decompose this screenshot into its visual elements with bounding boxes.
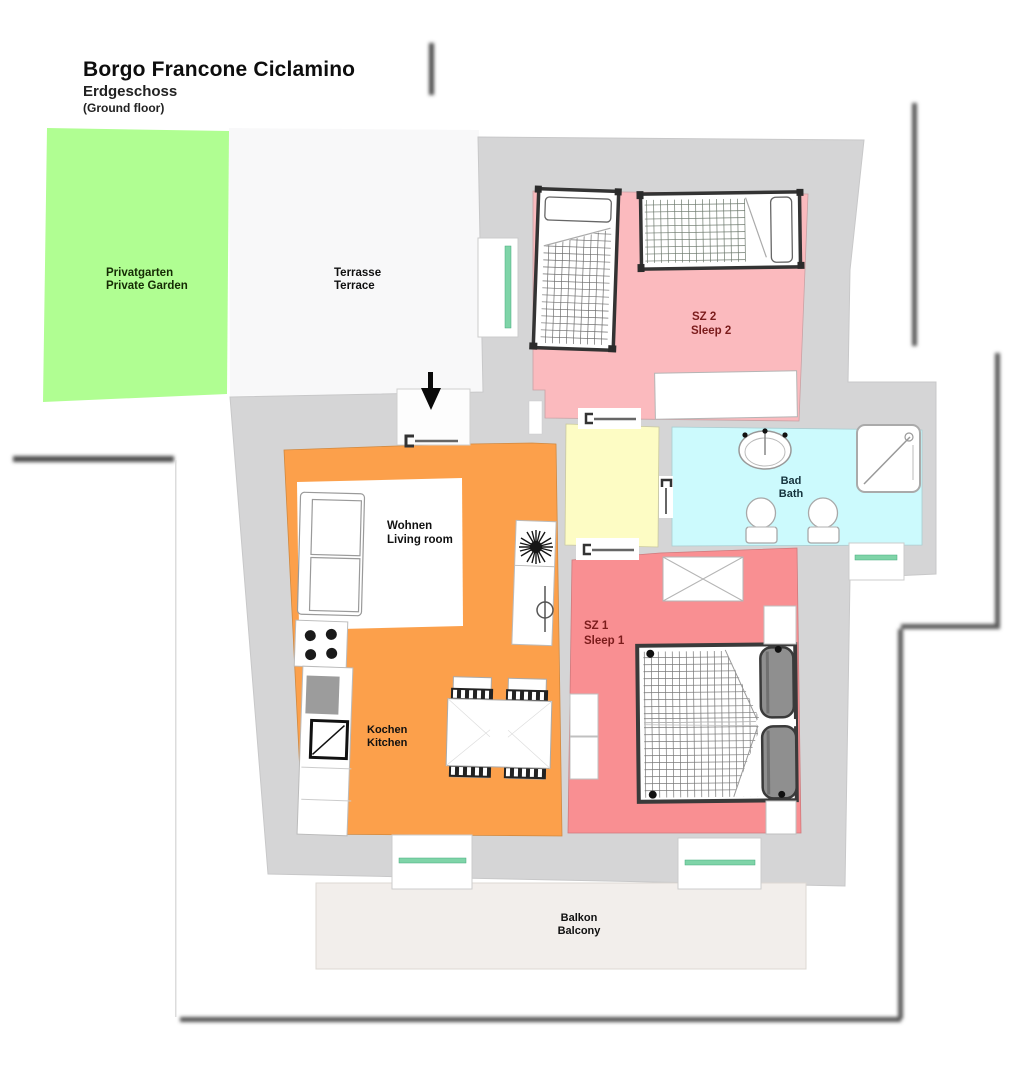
svg-text:Terrace: Terrace (334, 280, 375, 292)
svg-text:Erdgeschoss: Erdgeschoss (83, 83, 177, 100)
svg-text:Kochen: Kochen (367, 724, 408, 736)
svg-text:Sleep 1: Sleep 1 (584, 635, 625, 647)
svg-text:Privatgarten: Privatgarten (106, 267, 173, 279)
svg-text:Sleep 2: Sleep 2 (691, 325, 731, 337)
svg-text:SZ 2: SZ 2 (692, 311, 716, 323)
svg-text:Wohnen: Wohnen (387, 520, 432, 532)
svg-text:Living room: Living room (387, 534, 453, 546)
svg-text:Kitchen: Kitchen (367, 737, 408, 749)
svg-text:Borgo Francone Ciclamino: Borgo Francone Ciclamino (83, 58, 355, 81)
svg-text:Bath: Bath (779, 488, 804, 500)
svg-text:Bad: Bad (781, 475, 802, 487)
svg-text:Balcony: Balcony (558, 925, 602, 937)
svg-text:Terrasse: Terrasse (334, 267, 381, 279)
svg-text:SZ 1: SZ 1 (584, 620, 609, 632)
svg-text:(Ground floor): (Ground floor) (83, 101, 164, 115)
svg-text:Private Garden: Private Garden (106, 280, 188, 292)
svg-text:Balkon: Balkon (561, 912, 598, 924)
